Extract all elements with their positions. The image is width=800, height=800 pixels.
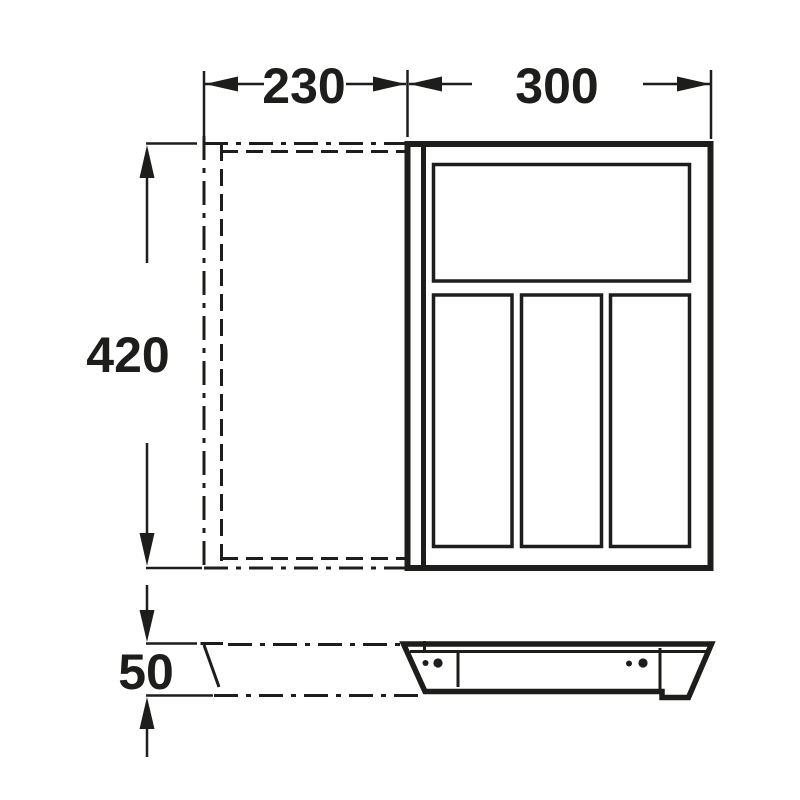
fixing-hole-large-right <box>638 658 647 667</box>
side-view <box>201 641 712 698</box>
fixing-hole-large-left <box>433 658 442 667</box>
arrowhead-up-icon <box>140 145 155 178</box>
technical-drawing-page: 230 300 420 50 <box>0 0 800 800</box>
fixing-hole-small-left <box>423 660 429 666</box>
extended-end-slant-edge <box>204 645 219 687</box>
plan-extension-phantom-outline <box>204 136 405 568</box>
dimension-300-label: 300 <box>515 58 598 114</box>
compartment-top <box>434 165 690 282</box>
arrowhead-down-icon <box>140 533 155 566</box>
arrowhead-up-icon <box>140 697 155 729</box>
dimension-50-label: 50 <box>118 644 174 700</box>
arrowhead-right-icon <box>373 77 406 92</box>
arrowhead-left-icon <box>409 77 442 92</box>
tray-outer-border <box>408 144 711 568</box>
dimension-extension-width: 230 <box>204 58 406 140</box>
arrowhead-right-icon <box>677 77 710 92</box>
compartment-middle <box>522 295 602 547</box>
dimension-230-label: 230 <box>262 58 345 114</box>
side-extension-phantom <box>201 644 420 696</box>
dimension-tray-width: 300 <box>408 58 712 139</box>
fixing-hole-small-right <box>626 661 632 667</box>
compartment-left <box>434 295 513 547</box>
arrowhead-left-icon <box>205 77 238 92</box>
plan-view <box>204 136 711 568</box>
compartment-right <box>611 295 690 547</box>
dimension-tray-height: 50 <box>118 585 213 757</box>
arrowhead-down-icon <box>140 610 155 642</box>
cutlery-tray-dimension-drawing: 230 300 420 50 <box>0 0 800 800</box>
dimension-tray-depth: 420 <box>86 144 202 569</box>
dimension-420-label: 420 <box>86 327 169 383</box>
